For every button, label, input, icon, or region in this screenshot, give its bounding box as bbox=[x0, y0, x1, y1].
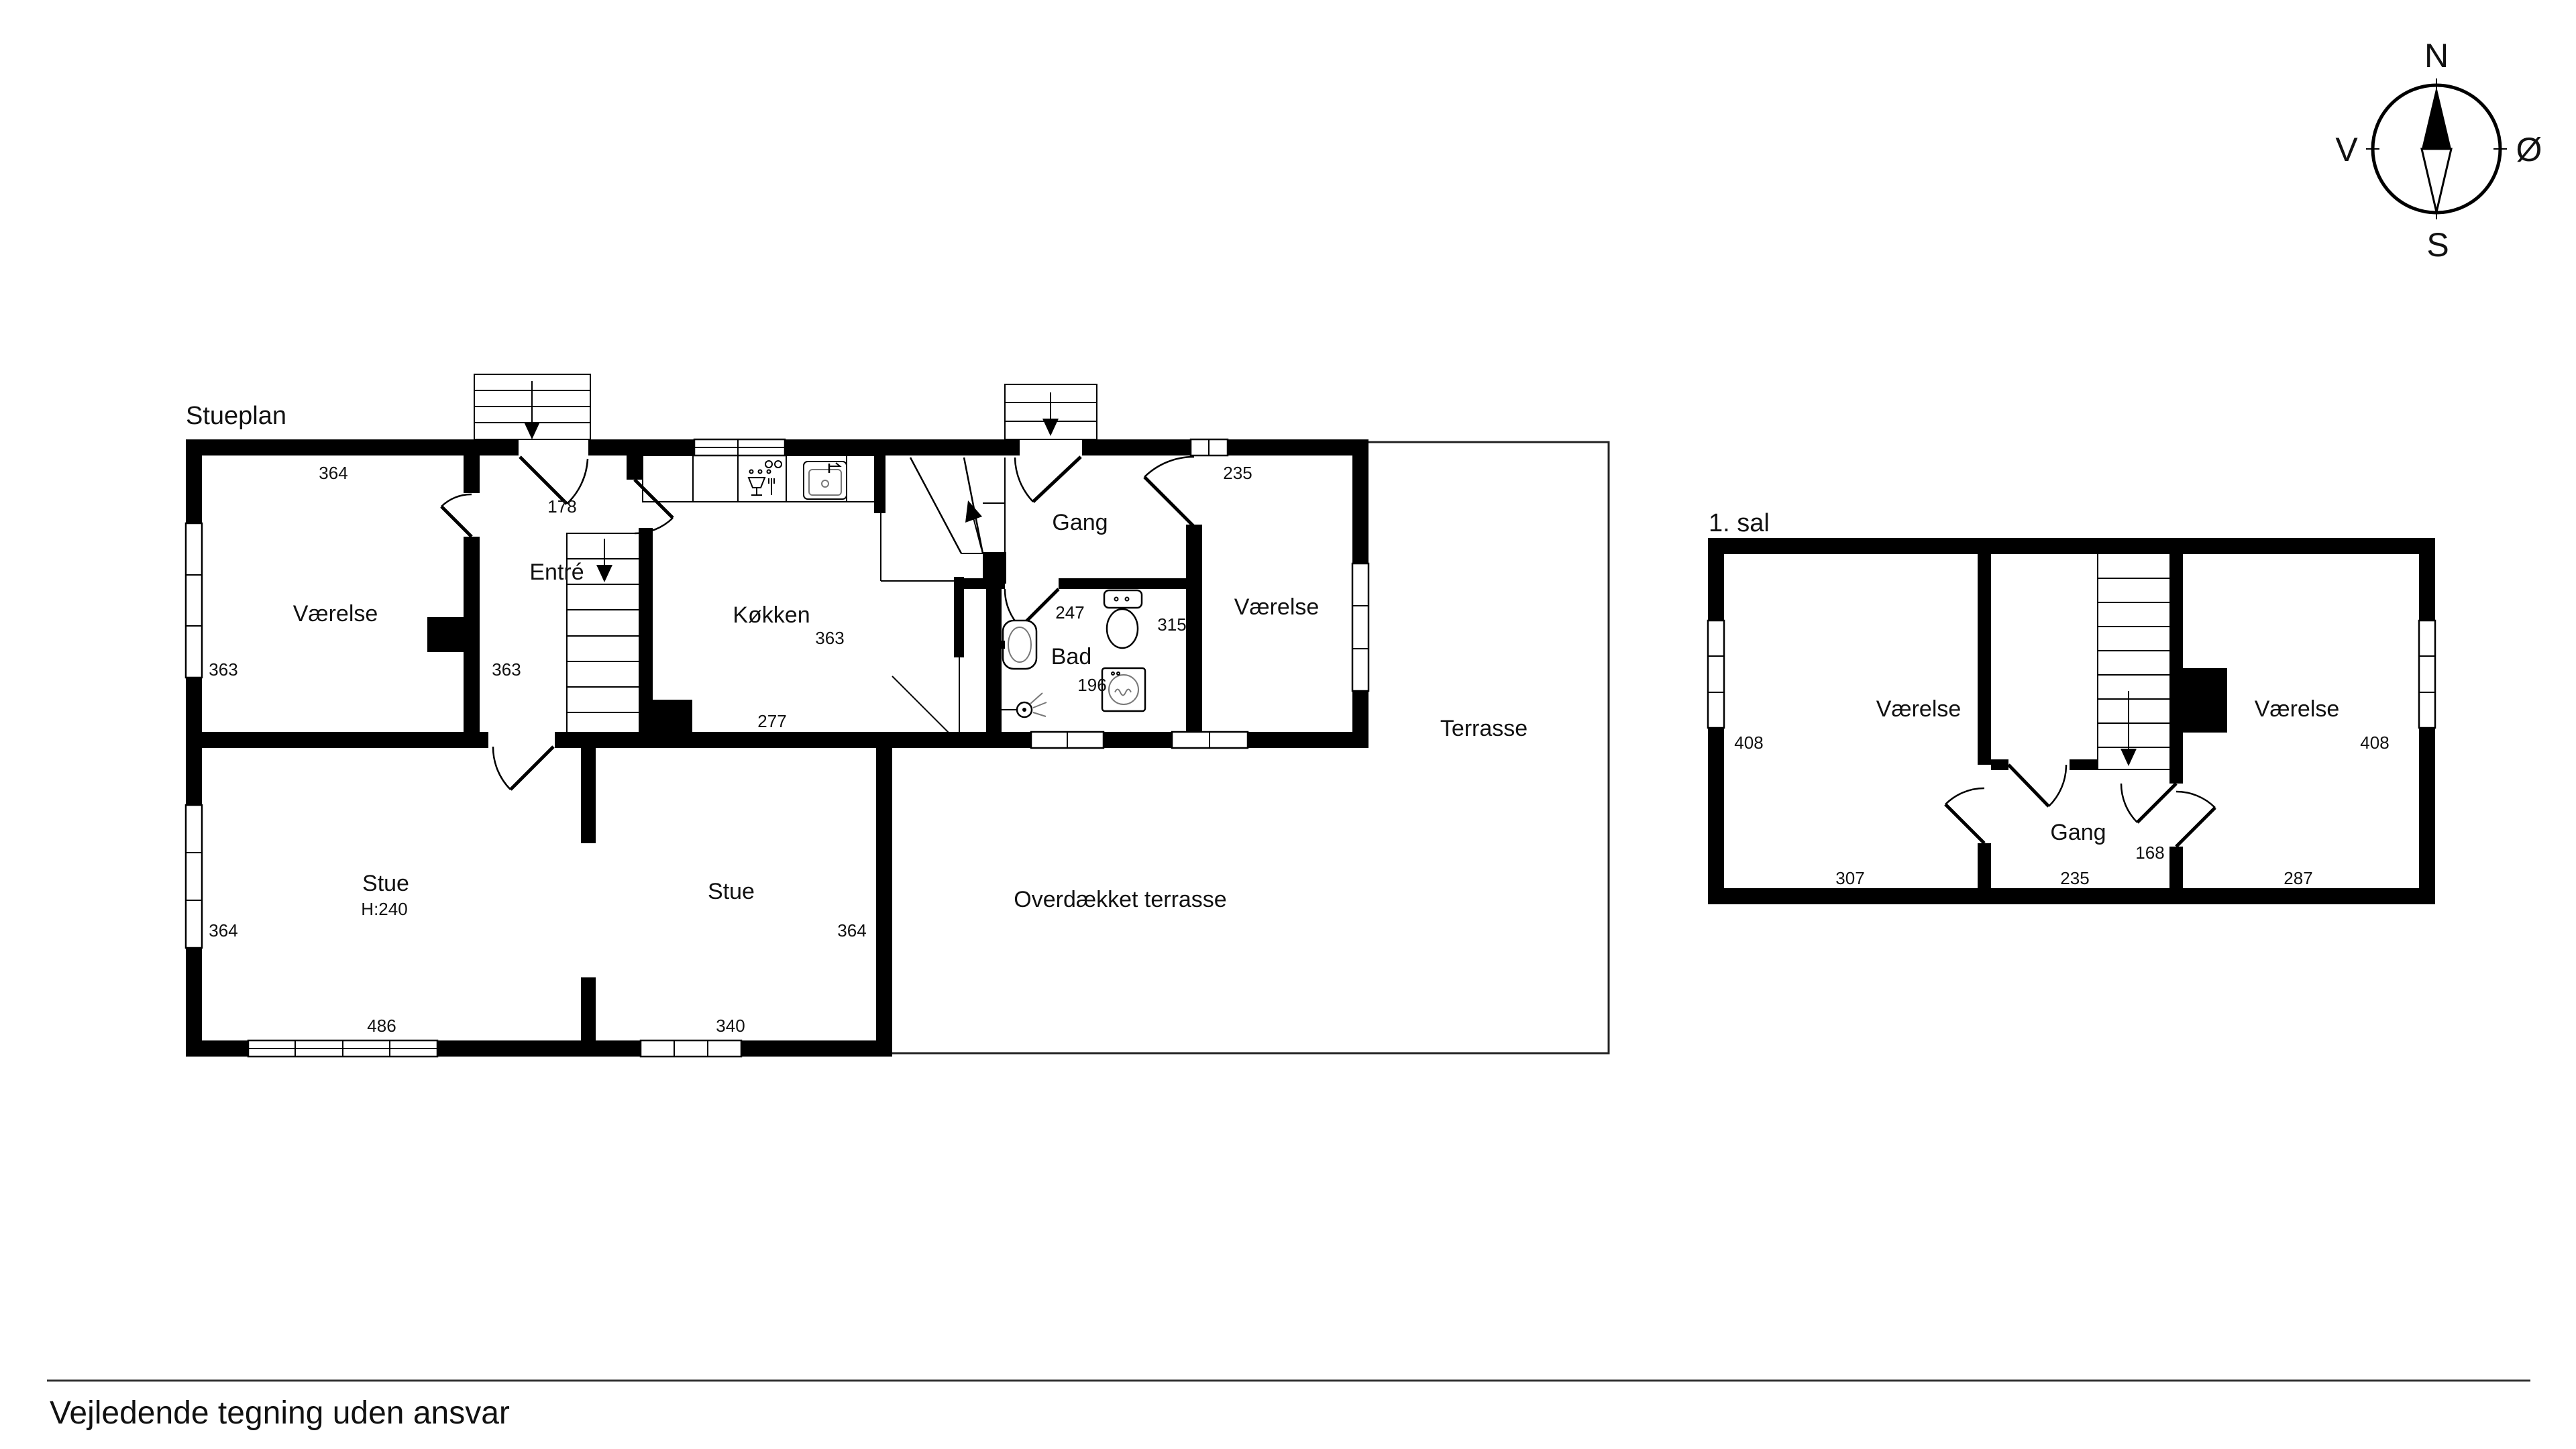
window-icon bbox=[248, 1040, 437, 1057]
window-icon bbox=[186, 523, 202, 678]
front-steps-icon bbox=[474, 374, 590, 439]
window-icon bbox=[694, 439, 785, 455]
room-label-gang: Gang bbox=[1052, 510, 1108, 535]
room-label-kokken: Køkken bbox=[733, 602, 810, 628]
room-label-stue-e: Stue bbox=[708, 879, 755, 904]
room-label-vaerelse-ne: Værelse bbox=[1234, 594, 1320, 620]
dim-stue-e-bottom: 340 bbox=[716, 1016, 745, 1036]
compass-east-label: Ø bbox=[2516, 131, 2542, 168]
room-label-entre: Entré bbox=[529, 559, 584, 585]
room-label-vaerelse-nw: Værelse bbox=[293, 601, 378, 627]
compass-needle-south bbox=[2422, 149, 2451, 212]
compass-north-label: N bbox=[2424, 37, 2449, 74]
room-label-vaerelse-w: Værelse bbox=[1876, 696, 1962, 722]
footer: Vejledende tegning uden ansvar bbox=[47, 1381, 2530, 1431]
dim-bottom-center: 235 bbox=[2060, 868, 2089, 888]
dim-kokken-right: 363 bbox=[815, 628, 844, 648]
chimney-block bbox=[427, 617, 480, 652]
dim-vaerelse-nw-left: 363 bbox=[209, 659, 237, 680]
dim-stue-w-bottom: 486 bbox=[367, 1016, 396, 1036]
washing-machine-icon bbox=[1102, 668, 1145, 711]
window-icon bbox=[2419, 621, 2435, 728]
room-height-stue: H:240 bbox=[361, 899, 407, 919]
door-entre-kokken bbox=[635, 480, 673, 533]
back-steps-icon bbox=[1005, 384, 1097, 439]
door-entre-vaerelse bbox=[441, 494, 472, 537]
footer-disclaimer: Vejledende tegning uden ansvar bbox=[50, 1395, 510, 1431]
toilet-icon bbox=[1104, 590, 1142, 648]
ground-floor-plan: Stueplan Værelse Entré Køkken Gang Bad V… bbox=[186, 374, 1609, 1057]
door-entre-stue bbox=[493, 747, 553, 790]
dim-front-door: 178 bbox=[547, 496, 576, 517]
room-label-bad: Bad bbox=[1051, 644, 1092, 669]
compass-west-label: V bbox=[2335, 131, 2358, 168]
back-door bbox=[1015, 457, 1081, 502]
kitchen-sink-icon bbox=[804, 462, 847, 499]
room-label-vaerelse-e: Værelse bbox=[2255, 696, 2340, 722]
dim-vaerelse-ne-left: 315 bbox=[1157, 614, 1186, 635]
plan-title-first: 1. sal bbox=[1709, 509, 1770, 537]
window-icon bbox=[641, 1040, 741, 1057]
door-gang-vaerelse bbox=[1144, 457, 1194, 527]
window-icon bbox=[1031, 732, 1104, 748]
dim-gang-width: 168 bbox=[2135, 843, 2164, 863]
room-label-stue-w: Stue bbox=[362, 871, 409, 896]
dim-vaerelse-ne-top: 235 bbox=[1223, 463, 1252, 483]
staircase-first-floor bbox=[2098, 554, 2169, 769]
compass-south-label: S bbox=[2426, 226, 2449, 264]
room-label-terrasse: Terrasse bbox=[1440, 716, 1527, 741]
dim-stue-e-right: 364 bbox=[837, 920, 866, 941]
chimney-block bbox=[2183, 668, 2227, 733]
door-gang-vaerelse-e bbox=[2121, 784, 2215, 847]
dim-entre-wall: 363 bbox=[492, 659, 521, 680]
dim-vaerelse-e-side: 408 bbox=[2360, 733, 2389, 753]
window-icon bbox=[186, 805, 202, 948]
dim-kokken-bottom: 277 bbox=[757, 711, 786, 731]
floorplan-drawing: Stueplan Værelse Entré Køkken Gang Bad V… bbox=[0, 0, 2576, 1449]
dim-gang: 247 bbox=[1055, 602, 1084, 623]
dim-vaerelse-w-side: 408 bbox=[1734, 733, 1763, 753]
window-icon bbox=[1172, 732, 1248, 748]
first-floor-plan: 1. sal Værelse Værelse Gang 408 408 168 … bbox=[1708, 509, 2435, 904]
bathroom-sink-icon bbox=[999, 621, 1036, 669]
shower-icon bbox=[1002, 693, 1046, 717]
dim-vaerelse-nw-top: 364 bbox=[319, 463, 347, 483]
dim-bad: 196 bbox=[1077, 675, 1106, 695]
window-icon bbox=[1191, 439, 1228, 455]
dim-stue-w-left: 364 bbox=[209, 920, 237, 941]
compass-icon: N S V Ø bbox=[2335, 37, 2542, 264]
compass-needle-north bbox=[2422, 87, 2451, 149]
room-label-overdaekket-terrasse: Overdækket terrasse bbox=[1014, 887, 1226, 912]
chimney-block bbox=[639, 700, 692, 732]
plan-title-ground: Stueplan bbox=[186, 402, 286, 430]
room-label-gang-first: Gang bbox=[2050, 820, 2106, 845]
kitchen-counter bbox=[643, 455, 875, 502]
window-icon bbox=[1708, 621, 1724, 728]
dim-bottom-right: 287 bbox=[2284, 868, 2312, 888]
floorplan-page: Stueplan Værelse Entré Køkken Gang Bad V… bbox=[0, 0, 2576, 1449]
dishwasher-icon bbox=[749, 461, 782, 495]
window-icon bbox=[1352, 563, 1368, 691]
dim-bottom-left: 307 bbox=[1835, 868, 1864, 888]
door-gang-vaerelse-w bbox=[1945, 765, 2066, 843]
